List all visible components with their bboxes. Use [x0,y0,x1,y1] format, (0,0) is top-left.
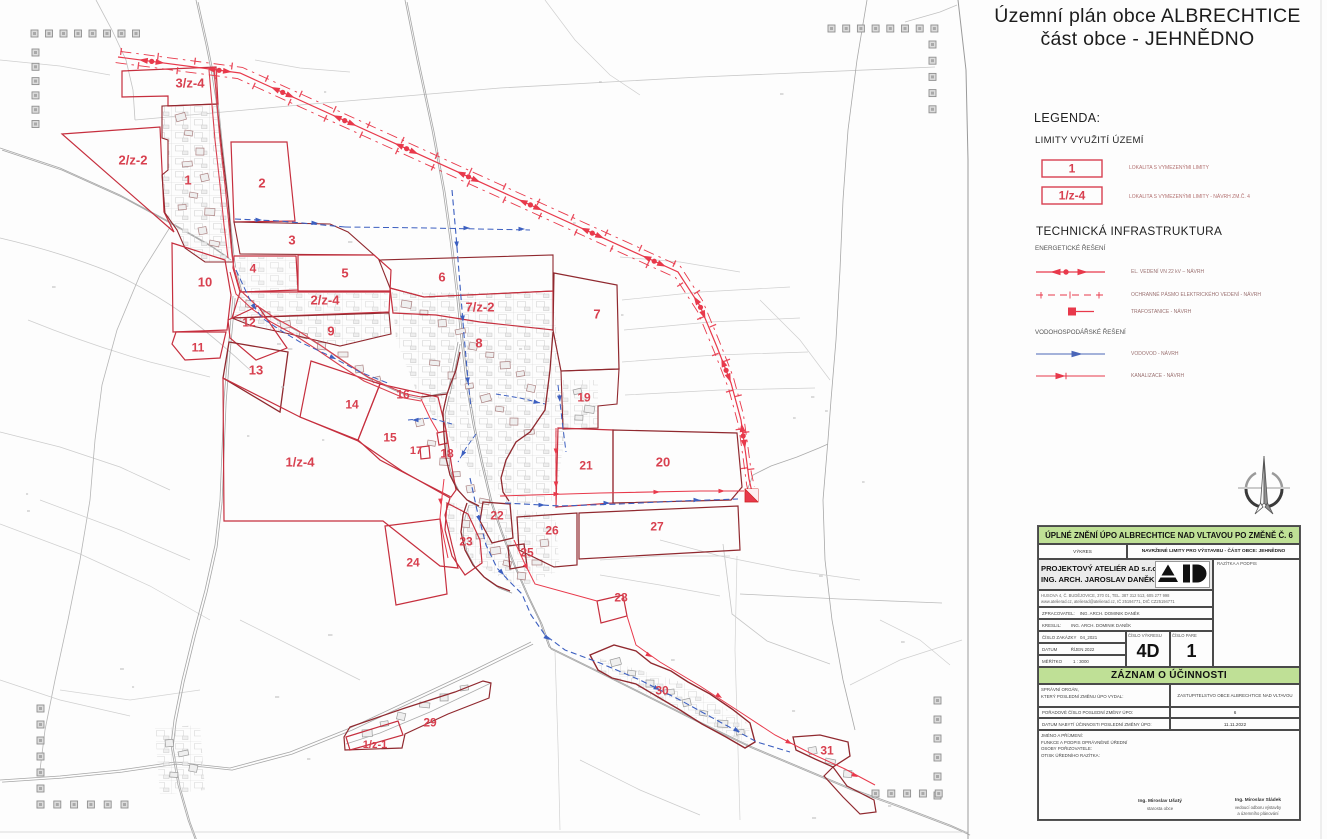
svg-text:28: 28 [614,590,628,604]
svg-text:1/z-4: 1/z-4 [1059,189,1086,203]
svg-text:30: 30 [655,683,669,697]
svg-text:7: 7 [593,307,600,322]
svg-text:2/z-2: 2/z-2 [119,153,148,168]
svg-text:3: 3 [288,233,295,248]
svg-text:17: 17 [410,445,422,457]
svg-text:20: 20 [656,455,670,470]
svg-text:27: 27 [650,519,664,533]
svg-text:16: 16 [396,387,410,401]
svg-text:2: 2 [258,176,265,191]
svg-text:25: 25 [520,545,534,559]
svg-text:12: 12 [242,315,256,329]
svg-text:1: 1 [1069,162,1076,176]
svg-text:6: 6 [438,270,445,285]
svg-text:26: 26 [545,523,559,537]
svg-text:29: 29 [423,715,437,729]
svg-text:5: 5 [341,266,348,281]
svg-text:4: 4 [250,261,257,275]
svg-text:15: 15 [383,430,397,444]
svg-text:21: 21 [579,458,593,472]
svg-text:11: 11 [192,340,205,354]
svg-text:1/z-1: 1/z-1 [363,739,387,751]
svg-text:2/z-4: 2/z-4 [311,293,341,308]
svg-text:3/z-4: 3/z-4 [176,76,206,91]
svg-text:14: 14 [345,397,359,411]
svg-text:22: 22 [490,508,504,522]
svg-text:31: 31 [820,743,834,757]
svg-text:24: 24 [406,555,420,569]
svg-text:1/z-4: 1/z-4 [286,455,316,470]
svg-text:1: 1 [184,173,191,188]
svg-text:9: 9 [327,324,334,339]
svg-text:8: 8 [475,336,482,351]
svg-text:10: 10 [198,275,212,290]
svg-text:7/z-2: 7/z-2 [466,300,495,315]
svg-text:13: 13 [249,363,263,378]
svg-text:19: 19 [577,390,591,404]
svg-text:18: 18 [440,446,454,460]
svg-text:23: 23 [459,534,473,548]
